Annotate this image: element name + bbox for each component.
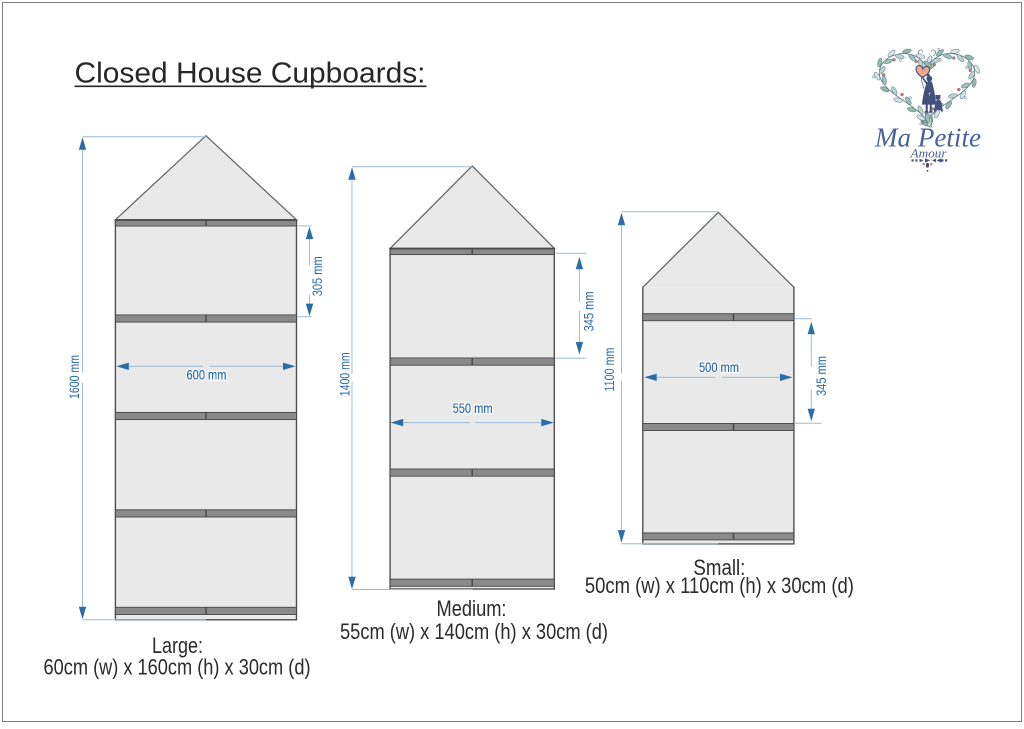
svg-text:60cm (w) x 160cm (h) x 30cm (d: 60cm (w) x 160cm (h) x 30cm (d) xyxy=(44,655,311,680)
svg-text:1600 mm: 1600 mm xyxy=(67,355,82,399)
svg-text:500 mm: 500 mm xyxy=(699,360,739,375)
svg-text:1400 mm: 1400 mm xyxy=(338,352,353,396)
svg-text:1100 mm: 1100 mm xyxy=(602,348,617,392)
svg-text:345 mm: 345 mm xyxy=(814,356,829,396)
svg-text:600 mm: 600 mm xyxy=(187,367,227,382)
svg-text:Amour: Amour xyxy=(909,146,947,161)
svg-text:550 mm: 550 mm xyxy=(453,401,493,416)
svg-text:Medium:: Medium: xyxy=(437,596,507,621)
svg-text:Closed House Cupboards:: Closed House Cupboards: xyxy=(75,57,426,89)
svg-text:345 mm: 345 mm xyxy=(582,291,597,331)
svg-text:305 mm: 305 mm xyxy=(310,256,325,296)
svg-text:55cm (w) x 140cm (h) x 30cm (d: 55cm (w) x 140cm (h) x 30cm (d) xyxy=(340,619,608,644)
svg-text:50cm (w) x 110cm (h) x 30cm (d: 50cm (w) x 110cm (h) x 30cm (d) xyxy=(585,573,854,598)
